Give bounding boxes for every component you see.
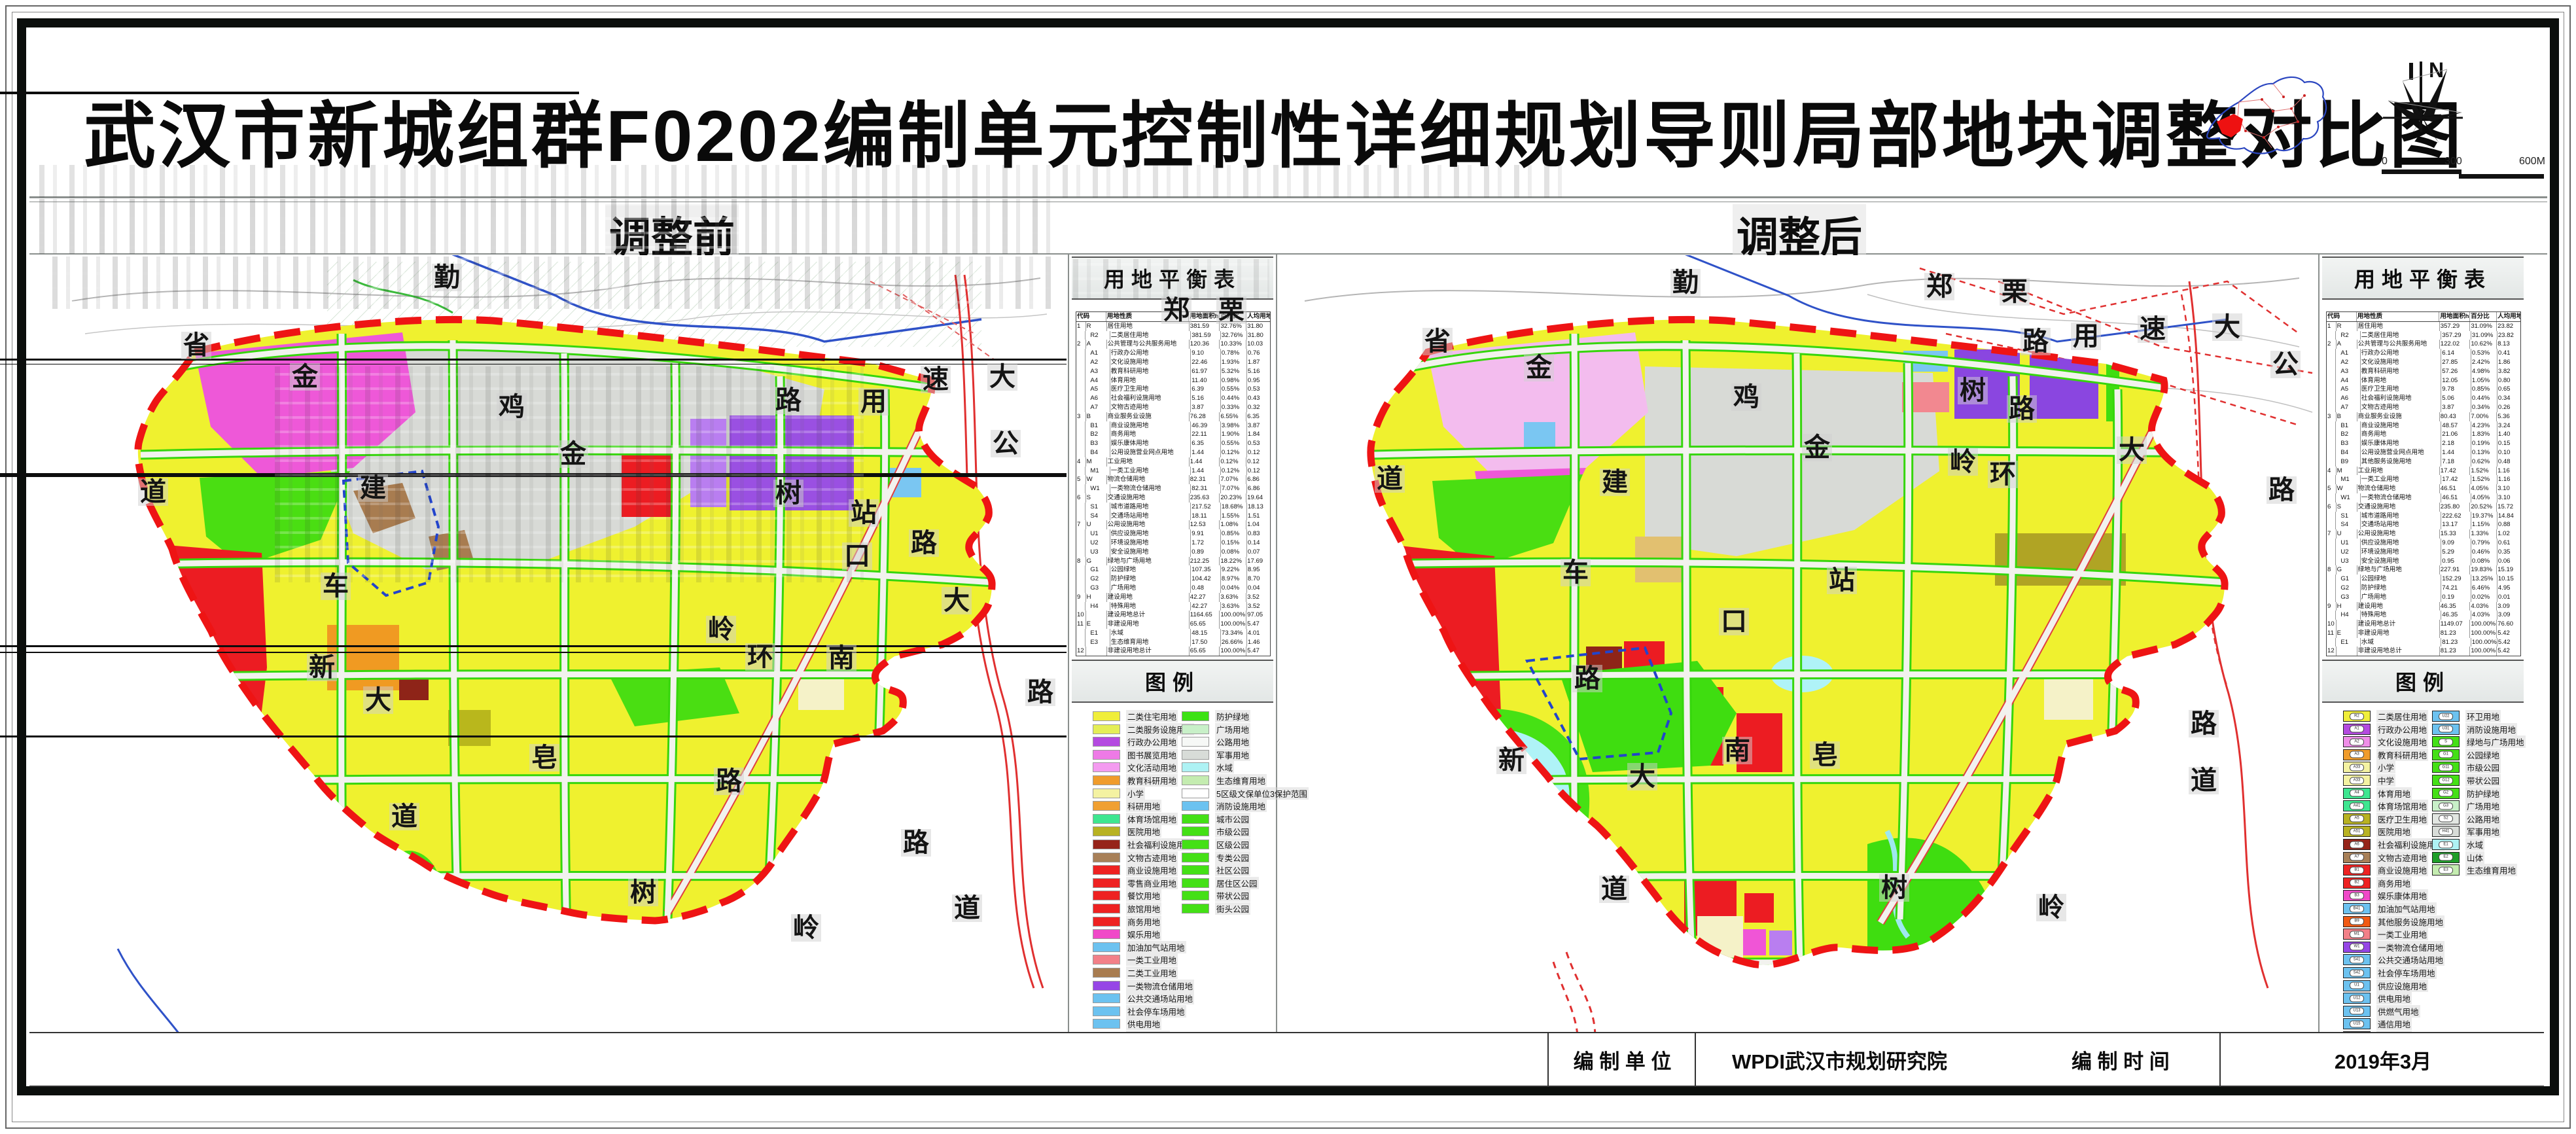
legend-swatch — [1093, 840, 1120, 849]
divider-tables-right-map — [1276, 255, 1277, 1084]
legend-swatch: E3 — [2432, 864, 2460, 876]
legend-item: 医院用地 — [1093, 826, 1161, 837]
table-header-row: 代码用地性质用地面积ha百分比人均用地m2 — [1076, 312, 1270, 322]
legend-item: U22环卫用地 — [2432, 711, 2501, 722]
legend-label: 公共交通场站用地 — [1126, 992, 1194, 1004]
legend-swatch: U22 — [2432, 711, 2460, 722]
table-row: B9其他服务设施用地7.180.62%0.48 — [2327, 457, 2520, 467]
table-row: 6S交通设施用地235.8020.52%15.72 — [2327, 503, 2520, 512]
legend-swatch — [1093, 826, 1120, 836]
table-row: 12非建设用地总计65.65100.00%5.47 — [1076, 647, 1270, 656]
table-row: H4特殊用地42.273.63%3.52 — [1076, 602, 1270, 611]
legend-item: U15通信用地 — [2343, 1018, 2412, 1029]
legend-swatch: H41 — [2432, 826, 2460, 837]
legend-label: 文化活动用地 — [1126, 761, 1178, 773]
legend-item: S41公共交通场站用地 — [2343, 954, 2444, 965]
legend-item: B1商业设施用地 — [2343, 864, 2428, 876]
legend-swatch — [1093, 942, 1120, 952]
legend-label: 一类物流仓储用地 — [2376, 941, 2444, 953]
legend-swatch: A51 — [2343, 826, 2371, 837]
legend-label: 教育科研用地 — [1126, 774, 1178, 787]
legend-swatch: G1 — [2432, 749, 2460, 760]
legend-swatch — [1093, 853, 1120, 862]
legend-item: 文化活动用地 — [1093, 762, 1178, 773]
table-row: 10建设用地总计1149.07100.00%76.60 — [2327, 620, 2520, 629]
legend-label: 科研用地 — [1126, 800, 1161, 812]
legend-label: 军事用地 — [2465, 825, 2501, 838]
border-bottom — [17, 1086, 2559, 1095]
legend-item: U12供电用地 — [2343, 993, 2412, 1004]
legend-item: A6社会福利设施用地 — [2343, 839, 2444, 850]
table-row: G2防护绿地104.428.97%8.70 — [1076, 575, 1270, 584]
table-row: 2A公共管理与公共服务用地120.3610.33%10.03 — [1076, 340, 1270, 349]
legend-swatch: A6 — [2343, 839, 2371, 850]
legend-item: 零售商业用地 — [1093, 877, 1178, 889]
legend-swatch — [1093, 814, 1120, 824]
legend-label: 5区级文保单位3保护范围 — [1215, 787, 1309, 800]
map-after-svg — [1279, 255, 2318, 1081]
before-legend-title: 图例 — [1145, 666, 1200, 696]
legend-item: B9其他服务设施用地 — [2343, 916, 2444, 927]
after-balance-table: 代码用地性质用地面积ha百分比人均用地m21R居住用地357.2931.09%2… — [2326, 311, 2521, 656]
footer-org-label: 编 制 单 位 — [1547, 1033, 1696, 1086]
legend-label: 居住区公园 — [1215, 877, 1259, 889]
legend-label: 文化设施用地 — [2376, 735, 2428, 748]
legend-swatch: S41 — [2343, 954, 2371, 965]
legend-swatch: S2 — [2432, 813, 2460, 824]
legend-item: A33中学 — [2343, 775, 2395, 786]
legend-swatch — [1093, 750, 1120, 760]
legend-swatch — [1093, 904, 1120, 913]
legend-label: 带状公园 — [1215, 889, 1250, 902]
glitch-line — [0, 473, 1067, 477]
legend-item: 公共交通场站用地 — [1093, 993, 1194, 1004]
legend-swatch: U13 — [2343, 1006, 2371, 1017]
legend-swatch — [1093, 1019, 1120, 1029]
scale-tick-600: 600M — [2519, 156, 2545, 168]
table-row: B3娱乐康体用地6.350.55%0.53 — [1076, 439, 1270, 448]
after-legend-title: 图例 — [2395, 666, 2450, 696]
legend-swatch: A4 — [2343, 788, 2371, 799]
table-row: 10建设用地总计1164.65100.00%97.05 — [1076, 611, 1270, 620]
locator-map — [2200, 56, 2334, 171]
legend-label: 一类工业用地 — [2376, 928, 2428, 940]
table-row: A7文物古迹用地3.870.33%0.32 — [1076, 403, 1270, 412]
legend-item: 区级公园 — [1182, 839, 1250, 850]
legend-label: 行政办公用地 — [1126, 735, 1178, 748]
legend-item: 体育场馆用地 — [1093, 813, 1178, 824]
legend-label: 教育科研用地 — [2376, 749, 2428, 761]
table-row: 5W物流仓储用地82.317.07%6.86 — [1076, 475, 1270, 484]
legend-label: 娱乐康体用地 — [2376, 889, 2428, 902]
legend-label: 体育场馆用地 — [1126, 813, 1178, 825]
legend-label: 行政办公用地 — [2376, 723, 2428, 735]
legend-item: U13供燃气用地 — [2343, 1006, 2420, 1017]
legend-swatch — [1182, 865, 1209, 875]
table-row: E3生态维育用地17.5026.66%1.46 — [1076, 638, 1270, 647]
legend-label: 绿地与广场用地 — [2465, 735, 2526, 748]
legend-label: 带状公园 — [2465, 774, 2501, 787]
legend-item: G2防护绿地 — [2432, 788, 2501, 799]
legend-item: 社会福利设施用地 — [1093, 839, 1194, 850]
legend-item: 广场用地 — [1182, 724, 1250, 735]
table-row: E1水域48.1573.34%4.01 — [1076, 629, 1270, 638]
table-row: 5W物流仓储用地46.514.05%3.10 — [2327, 484, 2520, 493]
table-row: A5医疗卫生用地9.780.85%0.65 — [2327, 385, 2520, 394]
legend-label: 体育场馆用地 — [2376, 800, 2428, 812]
legend-swatch: W1 — [2343, 942, 2371, 953]
legend-label: 公共交通场站用地 — [2376, 953, 2444, 966]
legend-label: 一类工业用地 — [1126, 953, 1178, 966]
legend-swatch — [1093, 737, 1120, 747]
legend-label: 专类公园 — [1215, 851, 1250, 864]
table-row: 8G绿地与广场用地212.2518.22%17.69 — [1076, 557, 1270, 566]
legend-item: 水域 — [1182, 762, 1234, 773]
legend-item: 5区级文保单位3保护范围 — [1182, 788, 1309, 799]
table-row: 9H建设用地46.354.03%3.09 — [2327, 602, 2520, 611]
legend-item: 娱乐用地 — [1093, 929, 1161, 940]
legend-label: 加油加气站用地 — [1126, 941, 1186, 953]
legend-item: 商业设施用地 — [1093, 864, 1178, 876]
before-balance-table: 代码用地性质用地面积ha百分比人均用地m21R居住用地381.5932.76%3… — [1076, 311, 1271, 656]
legend-swatch: A3 — [2343, 749, 2371, 760]
table-row: 12非建设用地总计81.23100.00%5.42 — [2327, 647, 2520, 656]
table-row: 7U公用设施用地15.331.33%1.02 — [2327, 529, 2520, 539]
legend-label: 市级公园 — [1215, 825, 1250, 838]
legend-item: 商务用地 — [1093, 916, 1161, 927]
legend-item: 社区公园 — [1182, 864, 1250, 876]
table-row: 9H建设用地42.273.63%3.52 — [1076, 593, 1270, 602]
table-row: 11E非建设用地81.23100.00%5.42 — [2327, 629, 2520, 638]
north-compass-icon: N — [2363, 55, 2481, 163]
legend-swatch: B3 — [2343, 890, 2371, 901]
table-row: 4M工业用地1.440.12%0.12 — [1076, 457, 1270, 467]
legend-swatch: A33 — [2343, 762, 2371, 773]
table-row: U3安全设施用地0.890.08%0.07 — [1076, 548, 1270, 557]
legend-item: A1行政办公用地 — [2343, 724, 2428, 735]
table-row: A3教育科研用地61.975.32%5.16 — [1076, 367, 1270, 376]
table-row: 2A公共管理与公共服务用地122.0210.62%8.13 — [2327, 340, 2520, 349]
legend-swatch — [1093, 981, 1120, 991]
legend-swatch — [1093, 1006, 1120, 1016]
table-row: 11E非建设用地65.65100.00%5.47 — [1076, 620, 1270, 629]
legend-item: 城市公园 — [1182, 813, 1250, 824]
legend-label: 商务用地 — [2376, 877, 2412, 889]
table-row: G1公园绿地152.2913.25%10.15 — [2327, 575, 2520, 584]
legend-item: U31消防设施用地 — [2432, 724, 2517, 735]
table-row: 1R居住用地381.5932.76%31.80 — [1076, 322, 1270, 331]
legend-swatch: G2 — [2432, 788, 2460, 799]
table-row: A2文化设施用地22.461.93%1.87 — [1076, 358, 1270, 367]
table-row: U3安全设施用地0.950.08%0.06 — [2327, 557, 2520, 566]
legend-label: 消防设施用地 — [2465, 723, 2517, 735]
legend-label: 零售商业用地 — [1126, 877, 1178, 889]
legend-swatch — [1182, 788, 1209, 798]
legend-swatch: A2 — [2343, 736, 2371, 747]
table-row: G2防护绿地74.216.46%4.95 — [2327, 584, 2520, 593]
legend-label: 小学 — [2376, 761, 2395, 773]
legend-swatch — [1093, 955, 1120, 965]
legend-item: 图书展览用地 — [1093, 749, 1178, 760]
legend-item: G3广场用地 — [2432, 800, 2501, 811]
legend-label: 医院用地 — [1126, 825, 1161, 838]
legend-swatch — [1093, 762, 1120, 772]
legend-label: 防护绿地 — [1215, 710, 1250, 722]
legend-label: 广场用地 — [2465, 800, 2501, 812]
glitch-line — [0, 359, 1067, 361]
legend-swatch — [1093, 788, 1120, 798]
legend-item: 小学 — [1093, 788, 1145, 799]
legend-item: E2山体 — [2432, 852, 2484, 863]
legend-item: A33小学 — [2343, 762, 2395, 773]
legend-item: 二类工业用地 — [1093, 967, 1178, 978]
legend-swatch — [1182, 853, 1209, 862]
table-row: B4公用设施营业网点用地1.440.13%0.10 — [2327, 448, 2520, 457]
divider-left-map-tables — [1068, 255, 1069, 1084]
table-row: S4交通场站用地13.171.15%0.88 — [2327, 520, 2520, 529]
map-before-svg — [46, 255, 1061, 1081]
table-row: A5医疗卫生用地6.390.55%0.53 — [1076, 385, 1270, 394]
legend-item: E3生态维育用地 — [2432, 864, 2517, 876]
table-row: G1公园绿地107.359.22%8.95 — [1076, 565, 1270, 575]
legend-label: 二类居住用地 — [2376, 710, 2428, 722]
legend-label: 消防设施用地 — [1215, 800, 1267, 812]
legend-swatch — [1093, 775, 1120, 785]
legend-item: A4体育用地 — [2343, 788, 2412, 799]
legend-label: 社会停车场用地 — [1126, 1005, 1186, 1018]
table-row: U1供应设施用地9.910.85%0.83 — [1076, 529, 1270, 539]
legend-item: B3娱乐康体用地 — [2343, 890, 2428, 901]
legend-item: S42社会停车场用地 — [2343, 967, 2437, 978]
legend-swatch: S — [2432, 736, 2460, 747]
footer-time-label: 编 制 时 间 — [2072, 1045, 2170, 1074]
table-row: 8G绿地与广场用地227.9119.83%15.19 — [2327, 565, 2520, 575]
legend-label: 二类工业用地 — [1126, 966, 1178, 979]
legend-swatch: B41 — [2343, 903, 2371, 914]
legend-label: 其他服务设施用地 — [2376, 915, 2444, 928]
legend-item: W1一类物流仓储用地 — [2343, 942, 2444, 953]
glitch-line — [0, 364, 1067, 364]
svg-text:N: N — [2429, 58, 2444, 82]
after-balance-panel: 用地平衡表 代码用地性质用地面积ha百分比人均用地m21R居住用地357.293… — [2322, 255, 2524, 658]
title-underline-2 — [29, 202, 2547, 202]
table-row: S1城市道路用地217.5218.68%18.13 — [1076, 503, 1270, 512]
table-row: A6社会福利设施用地5.160.44%0.43 — [1076, 394, 1270, 403]
legend-item: R2二类居住用地 — [2343, 711, 2428, 722]
legend-label: 环卫用地 — [2465, 710, 2501, 722]
legend-item: 一类物流仓储用地 — [1093, 980, 1194, 991]
table-row: A1行政办公用地6.140.53%0.41 — [2327, 349, 2520, 358]
legend-swatch — [1182, 814, 1209, 824]
table-row: B1商业设施用地46.393.98%3.87 — [1076, 421, 1270, 431]
legend-item: S2公路用地 — [2432, 813, 2501, 824]
legend-swatch: R2 — [2343, 711, 2371, 722]
legend-item: 餐饮用地 — [1093, 890, 1161, 901]
legend-label: 水域 — [2465, 838, 2484, 851]
table-row: B3娱乐康体用地2.180.19%0.15 — [2327, 439, 2520, 448]
table-row: B2商务用地22.111.90%1.84 — [1076, 430, 1270, 439]
legend-swatch — [1182, 762, 1209, 772]
table-row: 3B商业服务业设施76.286.55%6.35 — [1076, 412, 1270, 421]
legend-item: H41军事用地 — [2432, 826, 2501, 837]
legend-label: 小学 — [1126, 787, 1145, 800]
legend-item: 二类服务设施用地 — [1093, 724, 1194, 735]
legend-item: B2商务用地 — [2343, 877, 2412, 889]
legend-label: 二类住宅用地 — [1126, 710, 1178, 722]
legend-item: 科研用地 — [1093, 800, 1161, 811]
legend-item: A51医院用地 — [2343, 826, 2412, 837]
table-row: U2环境设施用地1.720.15%0.14 — [1076, 539, 1270, 548]
legend-swatch: E2 — [2432, 852, 2460, 863]
after-legend-panel: 图例 R2二类居住用地A1行政办公用地A2文化设施用地A3教育科研用地A33小学… — [2322, 660, 2524, 1082]
legend-swatch: B2 — [2343, 877, 2371, 889]
legend-swatch — [1182, 826, 1209, 836]
legend-label: 生态维育用地 — [2465, 864, 2517, 876]
legend-label: 街头公园 — [1215, 902, 1250, 915]
table-row: 1R居住用地357.2931.09%23.82 — [2327, 322, 2520, 331]
legend-swatch: A5 — [2343, 813, 2371, 824]
legend-swatch: A1 — [2343, 724, 2371, 735]
legend-label: 供电用地 — [2376, 992, 2412, 1004]
legend-item: G1公园绿地 — [2432, 749, 2501, 760]
table-row: 7U公用设施用地12.531.08%1.04 — [1076, 520, 1270, 529]
table-row: E1水域81.23100.00%5.42 — [2327, 638, 2520, 647]
table-header-row: 代码用地性质用地面积ha百分比人均用地m2 — [2327, 312, 2520, 322]
legend-label: 供应设施用地 — [2376, 980, 2428, 992]
legend-swatch — [1093, 929, 1120, 939]
table-row: U1供应设施用地9.090.79%0.61 — [2327, 539, 2520, 548]
legend-item: 带状公园 — [1182, 890, 1250, 901]
table-row: M1一类工业用地17.421.52%1.16 — [2327, 475, 2520, 484]
legend-label: 公园绿地 — [2465, 749, 2501, 761]
glitch-line — [0, 92, 579, 94]
legend-swatch — [1182, 711, 1209, 721]
scale-bar: 0 300 600M — [2382, 156, 2552, 180]
legend-item: 生态维育用地 — [1182, 775, 1267, 786]
legend-swatch — [1182, 775, 1209, 785]
before-balance-title: 用地平衡表 — [1104, 263, 1241, 293]
legend-label: 防护绿地 — [2465, 787, 2501, 800]
legend-swatch — [1093, 724, 1120, 734]
legend-item: 居住区公园 — [1182, 877, 1259, 889]
legend-label: 商业设施用地 — [1126, 864, 1178, 876]
legend-item: A2文化设施用地 — [2343, 736, 2428, 747]
legend-swatch: B1 — [2343, 864, 2371, 876]
legend-label: 体育用地 — [2376, 787, 2412, 800]
legend-label: 社会停车场用地 — [2376, 966, 2437, 979]
legend-label: 医疗卫生用地 — [2376, 813, 2428, 825]
scale-tick-300: 300 — [2444, 156, 2462, 168]
legend-item: 供电用地 — [1093, 1018, 1161, 1029]
table-row: A4体育用地11.400.98%0.95 — [1076, 376, 1270, 385]
table-row: S1城市道路用地222.6219.37%14.84 — [2327, 512, 2520, 521]
table-row: A4体育用地12.051.05%0.80 — [2327, 376, 2520, 385]
footer-time-value: 2019年3月 — [2219, 1033, 2545, 1086]
legend-label: 山体 — [2465, 851, 2484, 864]
legend-swatch: E1 — [2432, 839, 2460, 850]
legend-label: 餐饮用地 — [1126, 889, 1161, 902]
legend-item: A7文物古迹用地 — [2343, 852, 2428, 863]
legend-label: 文物古迹用地 — [2376, 851, 2428, 864]
legend-swatch — [1182, 891, 1209, 900]
table-row: G3广场用地0.480.04%0.04 — [1076, 584, 1270, 593]
before-legend-panel: 图例 二类住宅用地二类服务设施用地行政办公用地图书展览用地文化活动用地教育科研用… — [1072, 660, 1273, 1082]
table-row: R2二类居住用地381.5932.76%31.80 — [1076, 331, 1270, 340]
legend-item: A5医疗卫生用地 — [2343, 813, 2428, 824]
after-balance-title: 用地平衡表 — [2354, 263, 2492, 293]
legend-label: 文物古迹用地 — [1126, 851, 1178, 864]
legend-swatch — [1182, 878, 1209, 888]
table-row: H4特殊用地46.354.03%3.09 — [2327, 611, 2520, 620]
table-row: 6S交通设施用地235.6320.23%19.64 — [1076, 493, 1270, 503]
legend-swatch: U31 — [2432, 724, 2460, 735]
legend-label: 中学 — [2376, 774, 2395, 787]
legend-item: S绿地与广场用地 — [2432, 736, 2526, 747]
legend-item: G12带状公园 — [2432, 775, 2501, 786]
footer-org-value: WPDI武汉市规划研究院 编 制 时 间 — [1695, 1033, 2257, 1086]
table-row: U2环境设施用地5.290.46%0.35 — [2327, 548, 2520, 557]
legend-label: 广场用地 — [1215, 723, 1250, 735]
legend-item: 旅馆用地 — [1093, 903, 1161, 914]
legend-swatch: U12 — [2343, 993, 2371, 1004]
legend-item: E1水域 — [2432, 839, 2484, 850]
table-row: B1商业设施用地48.574.23%3.24 — [2327, 421, 2520, 431]
divider-right-map-tables — [2318, 255, 2320, 1084]
border-left — [17, 18, 26, 1095]
legend-swatch — [1093, 865, 1120, 875]
table-row: B2商务用地21.061.83%1.40 — [2327, 430, 2520, 439]
legend-item: 专类公园 — [1182, 852, 1250, 863]
legend-item: 加油加气站用地 — [1093, 942, 1186, 953]
legend-label: 生态维育用地 — [1215, 774, 1267, 787]
legend-swatch: M1 — [2343, 929, 2371, 940]
legend-label: 加油加气站用地 — [2376, 902, 2437, 915]
legend-item: 行政办公用地 — [1093, 736, 1178, 747]
legend-label: 供燃气用地 — [2376, 1005, 2420, 1018]
legend-label: 水域 — [1215, 761, 1234, 773]
table-row: W1一类物流仓储用地82.317.07%6.86 — [1076, 484, 1270, 493]
scale-tick-0: 0 — [2382, 156, 2388, 168]
legend-swatch — [1093, 891, 1120, 900]
legend-item: A3教育科研用地 — [2343, 749, 2428, 760]
legend-item: 一类工业用地 — [1093, 954, 1178, 965]
legend-label: 图书展览用地 — [1126, 749, 1178, 761]
table-row: B4公用设施营业网点用地1.440.12%0.12 — [1076, 448, 1270, 457]
legend-swatch — [1182, 737, 1209, 747]
table-row: A2文化设施用地27.852.42%1.86 — [2327, 358, 2520, 367]
legend-item: 军事用地 — [1182, 749, 1250, 760]
legend-label: 一类物流仓储用地 — [1126, 980, 1194, 992]
legend-label: 商务用地 — [1126, 915, 1161, 928]
legend-swatch: A33 — [2343, 775, 2371, 786]
legend-swatch: U1 — [2343, 980, 2371, 991]
legend-swatch: S42 — [2343, 967, 2371, 978]
legend-swatch — [1093, 801, 1120, 811]
legend-label: 商业设施用地 — [2376, 864, 2428, 876]
legend-label: 社区公园 — [1215, 864, 1250, 876]
legend-item: 防护绿地 — [1182, 711, 1250, 722]
legend-swatch — [1093, 968, 1120, 978]
legend-label: 供电用地 — [1126, 1018, 1161, 1030]
legend-label: 通信用地 — [2376, 1018, 2412, 1030]
legend-swatch — [1093, 993, 1120, 1003]
legend-swatch — [1182, 840, 1209, 849]
plan-sheet: 武汉市新城组群F0202编制单元控制性详细规划导则局部地块调整对比图 N 0 3… — [0, 0, 2576, 1134]
section-rule — [29, 253, 2547, 255]
legend-item: 二类住宅用地 — [1093, 711, 1178, 722]
legend-item: A41体育场馆用地 — [2343, 800, 2428, 811]
legend-label: 娱乐用地 — [1126, 928, 1161, 940]
